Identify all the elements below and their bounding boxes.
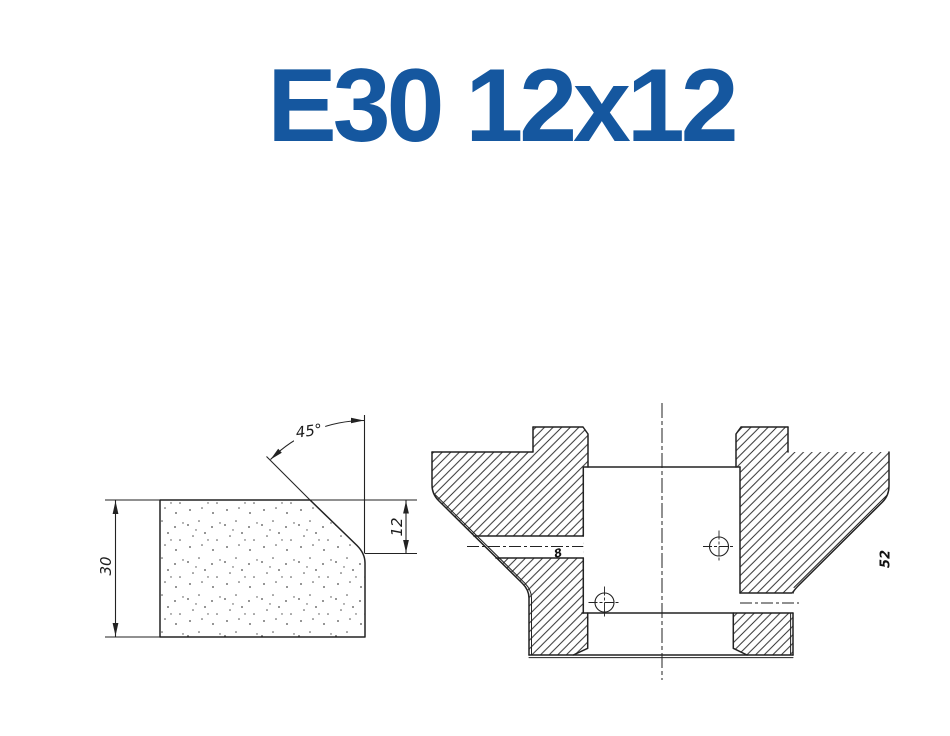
- page-title: E30 12x12: [267, 54, 734, 158]
- section-view-drawing: [425, 395, 915, 695]
- page: E30 12x12: [0, 0, 950, 736]
- height-dimension-label: 30: [97, 556, 115, 575]
- edge-dimension-label: 52: [879, 550, 894, 568]
- chamfer-height-dimension-label: 12: [388, 517, 406, 536]
- profile-view-drawing: [90, 405, 430, 650]
- section-right-wall: [733, 427, 889, 655]
